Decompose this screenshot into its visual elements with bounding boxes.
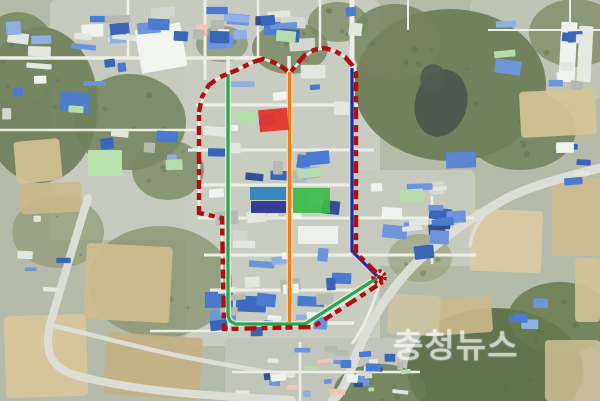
zone-red [258,108,289,132]
satellite-map: 충청뉴스 [0,0,600,401]
zone-navy [251,201,286,213]
zone-steel-blue [250,187,286,200]
zone-green [293,188,330,213]
junction-marker-center [377,275,381,279]
watermark-text: 충청뉴스 [393,329,600,362]
